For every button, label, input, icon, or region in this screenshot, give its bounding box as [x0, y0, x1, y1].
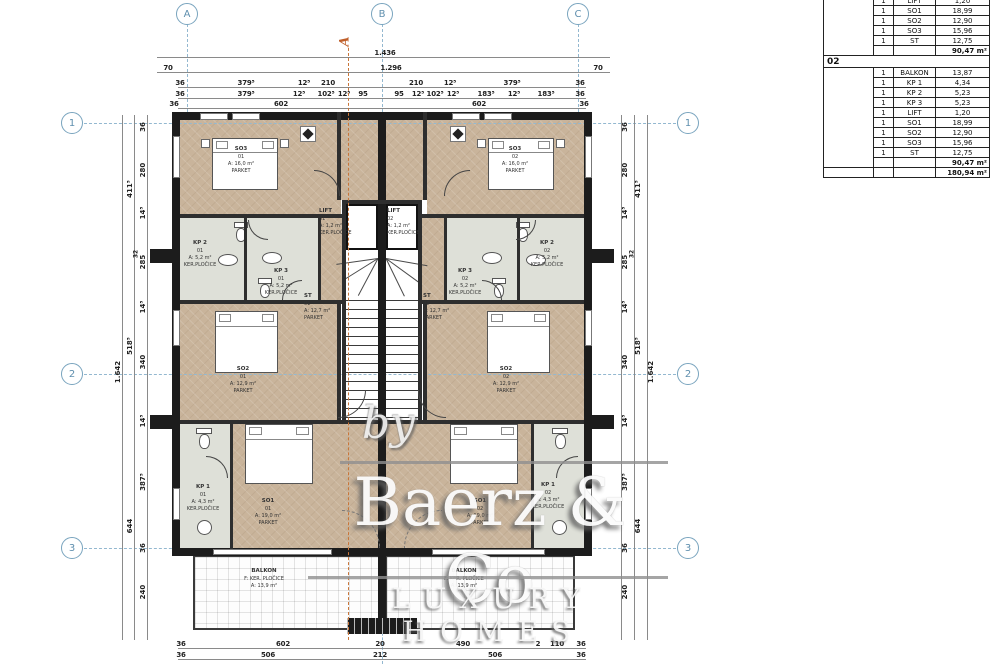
dim-label: 280: [621, 163, 629, 178]
window: [585, 310, 592, 346]
dim-line: [157, 57, 610, 58]
dim-label: 1.436: [374, 49, 395, 57]
pillow: [249, 427, 262, 435]
window: [452, 113, 480, 120]
room-name: BALKON: [244, 568, 284, 576]
dim-label: 36: [169, 100, 178, 108]
pillow: [219, 314, 231, 322]
dim-label: 210: [409, 79, 423, 87]
section-line-A: [348, 48, 349, 640]
dim-label: 110: [550, 640, 564, 648]
room-num: 02: [423, 301, 449, 308]
dim-label: 36: [576, 651, 585, 659]
room-name: KP 2: [184, 240, 217, 248]
dim-label: 12⁵: [447, 90, 459, 98]
dim-label: 36: [175, 90, 184, 98]
room-label-so3-02: SO3 02 A: 16,0 m² PARKET: [502, 146, 528, 176]
dim-label: 518⁵: [126, 337, 134, 355]
table-cell-value: 12,75: [936, 36, 990, 46]
dim-label: 95: [358, 90, 367, 98]
wall: [244, 218, 247, 302]
nightstand: [477, 139, 486, 148]
dim-label: 70: [593, 64, 602, 72]
window: [232, 113, 260, 120]
grid-bubble-B: B: [371, 3, 393, 25]
dim-label: 102⁵: [318, 90, 335, 98]
table-cell-value: 18,99: [936, 118, 990, 128]
dim-label: 12⁵: [412, 90, 424, 98]
table-cell-qty: 1: [874, 148, 894, 158]
dim-line: [178, 659, 586, 660]
dim-label: 14⁵: [621, 415, 629, 428]
room-floor: KER.PLOČICE: [319, 230, 352, 237]
table-cell-value: 4,34: [936, 78, 990, 88]
room-label-kp1-02: KP 1 02 A: 4,3 m² KER.PLOČICE: [532, 482, 565, 512]
dim-label: 36: [575, 79, 584, 87]
dim-label: 1.296: [380, 64, 401, 72]
room-num: 01: [187, 492, 220, 499]
nightstand: [201, 139, 210, 148]
room-name: KP 1: [532, 482, 565, 490]
room-floor: PARKET: [230, 388, 256, 395]
table-cell-blank: [894, 46, 936, 56]
dim-label: 12⁵: [508, 90, 520, 98]
dim-label: 1.642: [647, 361, 655, 383]
room-floor: PARKET: [502, 168, 528, 175]
table-cell-value: 12,75: [936, 148, 990, 158]
window: [173, 136, 180, 178]
corridor-floor-right: [420, 218, 447, 302]
dim-label: 506: [261, 651, 275, 659]
room-floor: KER.PLOČICE: [449, 290, 482, 297]
dim-label: 490: [456, 640, 470, 648]
stair-treads-right: [386, 300, 418, 422]
room-floor: F: KER. PLOČICE: [244, 576, 284, 583]
hall-floor-left: [341, 120, 378, 200]
table-cell-value: 18,99: [936, 6, 990, 16]
table-cell-qty: 1: [874, 36, 894, 46]
dim-label: 506: [488, 651, 502, 659]
dim-label: 36: [175, 79, 184, 87]
table-cell-blank: [874, 158, 894, 168]
room-area: A: 12,9 m²: [493, 381, 519, 388]
room-floor: F: KER. PLOČICE: [444, 576, 484, 583]
table-cell-name: LIFT: [894, 108, 936, 118]
table-cell-blank: [824, 0, 874, 56]
pillow: [534, 314, 546, 322]
dim-label: 36: [575, 90, 584, 98]
room-floor: PARKET: [423, 315, 449, 322]
dim-label: 14⁵: [621, 207, 629, 220]
room-num: 01: [228, 154, 254, 161]
room-label-so2-01: SO2 01 A: 12,9 m² PARKET: [230, 366, 256, 396]
grid-bubble-1-left: 1: [61, 112, 83, 134]
table-cell-name: SO2: [894, 16, 936, 26]
room-label-so3-01: SO3 01 A: 16,0 m² PARKET: [228, 146, 254, 176]
room-label-so2-02: SO2 02 A: 12,9 m² PARKET: [493, 366, 519, 396]
room-name: LIFT: [319, 208, 352, 216]
table-cell-qty: 1: [874, 138, 894, 148]
grid-bubble-1-right: 1: [677, 112, 699, 134]
table-cell-value: 12,90: [936, 16, 990, 26]
dim-label: 602: [274, 100, 288, 108]
room-name: SO1: [467, 498, 493, 506]
sink-icon: [262, 252, 282, 264]
wall-stub: [150, 249, 180, 263]
room-floor: KER.PLOČICE: [265, 290, 298, 297]
dim-label: 411⁵: [634, 180, 642, 198]
room-area: A: 13,9 m²: [444, 583, 484, 590]
table-cell-name: SO3: [894, 26, 936, 36]
room-num: 01: [319, 216, 352, 223]
dim-label: 210: [321, 79, 335, 87]
dim-label: 285: [139, 255, 147, 270]
room-area: A: 19,0 m²: [467, 513, 493, 520]
dim-line: [178, 98, 586, 99]
wall-stub: [584, 415, 614, 429]
pillow: [262, 314, 274, 322]
dim-label: 36: [139, 122, 147, 132]
dim-label: 183⁵: [538, 90, 555, 98]
dim-label: 644: [126, 519, 134, 534]
room-name: KP 2: [531, 240, 564, 248]
sink-icon: [482, 252, 502, 264]
room-floor: PARKET: [493, 388, 519, 395]
table-section-header: 02: [824, 56, 990, 68]
table-cell-value: 15,96: [936, 26, 990, 36]
table-cell-name: BALKON: [894, 68, 936, 78]
room-name: SO3: [228, 146, 254, 154]
dim-label: 95: [394, 90, 403, 98]
room-floor: PARKET: [255, 520, 281, 527]
dim-label: 411⁵: [126, 180, 134, 198]
dim-label: 2: [536, 640, 541, 648]
room-label-so1-02: SO1 02 A: 19,0 m² PARKET: [467, 498, 493, 528]
table-cell-qty: 1: [874, 16, 894, 26]
table-cell-qty: 1: [874, 68, 894, 78]
room-num: 02: [532, 490, 565, 497]
pillow: [538, 141, 550, 149]
room-num: 02: [449, 276, 482, 283]
window: [200, 113, 228, 120]
dim-line: [178, 87, 586, 88]
room-num: 02: [531, 248, 564, 255]
room-num: 02: [493, 374, 519, 381]
bed-line: [451, 439, 517, 440]
wall: [444, 218, 447, 302]
table-cell-name: SO2: [894, 128, 936, 138]
nightstand: [556, 139, 565, 148]
room-label-kp2-01: KP 2 01 A: 5,2 m² KER.PLOČICE: [184, 240, 217, 270]
room-name: SO3: [502, 146, 528, 154]
dim-label: 20: [375, 640, 384, 648]
area-table-grid: 1 LIFT 1,20 1SO118,99 1SO212,90 1SO315,9…: [823, 0, 990, 178]
dim-label: 280: [139, 163, 147, 178]
table-cell-blank: [824, 68, 874, 168]
table-cell-blank: [874, 168, 894, 178]
pillow: [262, 141, 274, 149]
dim-line: [621, 115, 622, 640]
room-area: A: 16,0 m²: [228, 161, 254, 168]
room-num: 01: [230, 374, 256, 381]
dim-line: [178, 108, 586, 109]
room-label-balkon-02: BALKON F: KER. PLOČICE A: 13,9 m²: [444, 568, 484, 590]
room-num: 02: [502, 154, 528, 161]
table-cell-qty: 1: [874, 88, 894, 98]
dim-label: 70: [163, 64, 172, 72]
bed-line: [246, 439, 312, 440]
room-area: A: 19,0 m²: [255, 513, 281, 520]
table-cell-qty: 1: [874, 78, 894, 88]
dim-label: 36: [579, 100, 588, 108]
room-name: BALKON: [444, 568, 484, 576]
sink-icon: [552, 520, 567, 535]
dim-label: 12⁵: [293, 90, 305, 98]
dim-label: 36: [621, 122, 629, 132]
room-area: A: 12,7 m²: [423, 308, 449, 315]
wall: [230, 424, 233, 552]
table-cell-value: 1,20: [936, 108, 990, 118]
grid-bubble-3-left: 3: [61, 537, 83, 559]
dim-line: [134, 115, 135, 640]
room-name: SO2: [230, 366, 256, 374]
dim-label: 340: [139, 355, 147, 370]
dim-line: [147, 115, 148, 640]
table-cell-value: 5,23: [936, 88, 990, 98]
room-label-kp1-01: KP 1 01 A: 4,3 m² KER.PLOČICE: [187, 484, 220, 514]
window: [484, 113, 512, 120]
floorplan-sheet: A: [0, 0, 1000, 667]
sink-icon: [218, 254, 238, 266]
window: [173, 488, 180, 520]
table-cell-value: 12,90: [936, 128, 990, 138]
nightstand: [280, 139, 289, 148]
room-area: A: 13,9 m²: [244, 583, 284, 590]
table-cell-blank: [894, 158, 936, 168]
pillow: [501, 427, 514, 435]
table-cell-section-total: 90,47 m²: [936, 46, 990, 56]
room-num: 01: [184, 248, 217, 255]
pillow: [454, 427, 467, 435]
room-area: A: 12,7 m²: [304, 308, 330, 315]
dim-label: 102⁵: [427, 90, 444, 98]
dim-label: 36: [621, 543, 629, 553]
room-floor: KER.PLOČICE: [531, 262, 564, 269]
room-num: 01: [304, 301, 330, 308]
room-floor: KER.PLOČICE: [187, 506, 220, 513]
room-num: 02: [467, 506, 493, 513]
table-cell-name: ST: [894, 36, 936, 46]
sink-icon: [197, 520, 212, 535]
wall: [386, 420, 584, 424]
room-label-lift-01: LIFT 01 A: 1,2 m² KER.PLOČICE: [319, 208, 352, 238]
toilet-icon: [199, 434, 210, 449]
wall-stub: [150, 415, 180, 429]
room-label-balkon-01: BALKON F: KER. PLOČICE A: 13,9 m²: [244, 568, 284, 590]
dim-label: 36: [176, 640, 185, 648]
table-cell-value: 13,87: [936, 68, 990, 78]
table-cell-qty: 1: [874, 108, 894, 118]
table-cell-name: KP 3: [894, 98, 936, 108]
dim-label: 602: [276, 640, 290, 648]
room-name: SO1: [255, 498, 281, 506]
wall-center-spine: [378, 112, 386, 626]
section-marker-A: A: [338, 36, 353, 46]
table-cell-blank: [874, 46, 894, 56]
wall-stub: [584, 249, 614, 263]
room-floor: PARKET: [228, 168, 254, 175]
dim-label: 183⁵: [478, 90, 495, 98]
window-door-balcony: [432, 549, 545, 555]
room-label-kp3-01: KP 3 01 A: 5,2 m² KER.PLOČICE: [265, 268, 298, 298]
grid-bubble-2-right: 2: [677, 363, 699, 385]
room-name: LIFT: [387, 208, 420, 216]
dim-label: 14⁵: [139, 301, 147, 314]
room-label-st-02: ST 02 A: 12,7 m² PARKET: [423, 293, 449, 323]
toilet-icon: [555, 434, 566, 449]
room-name: ST: [423, 293, 449, 301]
room-label-kp2-02: KP 2 02 A: 5,2 m² KER.PLOČICE: [531, 240, 564, 270]
table-cell-section-total: 90,47 m²: [936, 158, 990, 168]
wall: [423, 112, 427, 200]
bed-line: [216, 326, 277, 327]
dim-label: 387⁵: [139, 473, 147, 491]
dim-label: 340: [621, 355, 629, 370]
table-cell-qty: 1: [874, 26, 894, 36]
room-floor: KER.PLOČICE: [387, 230, 420, 237]
room-name: SO2: [493, 366, 519, 374]
pillow: [296, 427, 309, 435]
dim-label: 379⁵: [238, 79, 255, 87]
table-cell-value: 15,96: [936, 138, 990, 148]
table-cell-name: SO1: [894, 118, 936, 128]
room-name: ST: [304, 293, 330, 301]
hall-floor-right: [386, 120, 423, 200]
dim-label: 14⁵: [621, 301, 629, 314]
grid-bubble-2-left: 2: [61, 363, 83, 385]
table-cell-name: ST: [894, 148, 936, 158]
window-door-balcony: [213, 549, 332, 555]
table-cell-qty: 1: [874, 98, 894, 108]
table-cell-blank: [894, 168, 936, 178]
dim-label: 212: [373, 651, 387, 659]
dim-label: 379⁵: [504, 79, 521, 87]
window: [585, 488, 592, 520]
bed-line: [488, 326, 549, 327]
table-cell-name: KP 2: [894, 88, 936, 98]
table-cell-name: SO1: [894, 6, 936, 16]
room-num: 01: [265, 276, 298, 283]
table-cell-qty: 1: [874, 6, 894, 16]
dim-label: 14⁵: [139, 415, 147, 428]
room-label-so1-01: SO1 01 A: 19,0 m² PARKET: [255, 498, 281, 528]
dim-label: 12⁵: [298, 79, 310, 87]
table-cell-qty: 1: [874, 128, 894, 138]
dim-label: 387⁵: [621, 473, 629, 491]
room-floor: KER.PLOČICE: [532, 504, 565, 511]
window: [585, 136, 592, 178]
dim-line: [178, 648, 586, 649]
room-area: A: 12,9 m²: [230, 381, 256, 388]
room-name: KP 3: [265, 268, 298, 276]
dim-label: 240: [139, 585, 147, 600]
room-area: A: 16,0 m²: [502, 161, 528, 168]
exterior-stair-block: [347, 618, 417, 634]
dim-label: 644: [634, 519, 642, 534]
room-floor: KER.PLOČICE: [184, 262, 217, 269]
dim-label: 518⁵: [634, 337, 642, 355]
dim-label: 602: [472, 100, 486, 108]
dim-label: 1.642: [114, 361, 122, 383]
room-name: KP 3: [449, 268, 482, 276]
table-cell-name: SO3: [894, 138, 936, 148]
room-num: 01: [255, 506, 281, 513]
grid-bubble-A: A: [176, 3, 198, 25]
room-name: KP 1: [187, 484, 220, 492]
table-cell-qty: 1: [874, 118, 894, 128]
dim-label: 240: [621, 585, 629, 600]
room-floor: PARKET: [467, 520, 493, 527]
room-floor: PARKET: [304, 315, 330, 322]
table-cell-value: 5,23: [936, 98, 990, 108]
grid-bubble-3-right: 3: [677, 537, 699, 559]
dim-label: 285: [621, 255, 629, 270]
grid-bubble-C: C: [567, 3, 589, 25]
dim-line: [122, 115, 123, 640]
dim-label: 12⁵: [444, 79, 456, 87]
room-label-kp3-02: KP 3 02 A: 5,2 m² KER.PLOČICE: [449, 268, 482, 298]
pillow: [491, 314, 503, 322]
room-num: 02: [387, 216, 420, 223]
dim-line: [157, 72, 610, 73]
table-cell-grand-total: 180,94 m²: [936, 168, 990, 178]
dim-label: 32: [629, 250, 636, 258]
dim-label: 36: [176, 651, 185, 659]
dim-label: 379⁵: [238, 90, 255, 98]
area-table: 1 LIFT 1,20 1SO118,99 1SO212,90 1SO315,9…: [823, 0, 997, 198]
dim-label: 36: [576, 640, 585, 648]
pillow: [216, 141, 228, 149]
table-cell-blank: [824, 168, 874, 178]
room-label-st-01: ST 01 A: 12,7 m² PARKET: [304, 293, 330, 323]
dim-label: 14⁵: [139, 207, 147, 220]
table-cell-name: KP 1: [894, 78, 936, 88]
dim-label: 36: [139, 543, 147, 553]
window: [173, 310, 180, 346]
room-label-lift-02: LIFT 02 A: 1,2 m² KER.PLOČICE: [387, 208, 420, 238]
